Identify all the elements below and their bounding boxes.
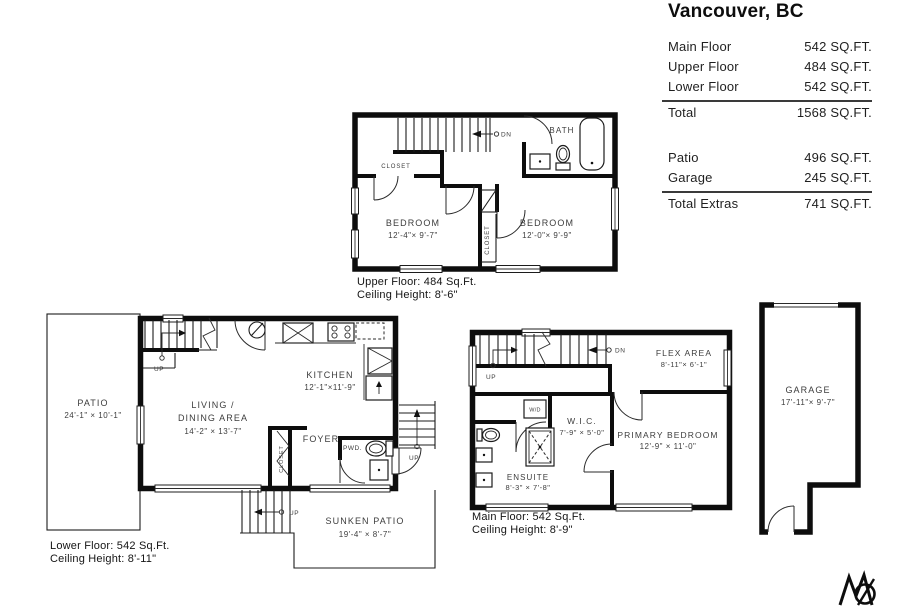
up-label: UP (289, 510, 299, 517)
upper-floor-plan: DN CLOSET CL (350, 110, 620, 275)
caption-line1: Main Floor: 542 Sq.Ft. (472, 511, 585, 524)
sunken-patio-outline: UP SUNKEN PATIO 19'-4" × 8'-7" (240, 490, 435, 568)
bedroom1-name: BEDROOM (386, 218, 440, 228)
living-dims: 14'-2" × 13'-7" (184, 427, 241, 436)
floorplan-sheet: Vancouver, BC Main Floor 542 SQ.FT. Uppe… (0, 0, 910, 606)
row-value: 741 SQ.FT. (804, 196, 872, 216)
wic-dims: 7'-9" × 5'-0" (560, 428, 605, 437)
living-line1: LIVING / (191, 400, 234, 410)
main-floor-caption: Main Floor: 542 Sq.Ft. Ceiling Height: 8… (472, 511, 585, 537)
kitchen-sink-icon (283, 323, 313, 343)
bedroom2-name: BEDROOM (520, 218, 574, 228)
kitchen-name: KITCHEN (306, 370, 353, 380)
row-value: 542 SQ.FT. (804, 39, 872, 59)
lower-floor-caption: Lower Floor: 542 Sq.Ft. Ceiling Height: … (50, 540, 170, 566)
closet-label: CLOSET (381, 164, 410, 170)
up-arrow-icon: UP (409, 409, 420, 462)
patio-name: PATIO (77, 398, 108, 408)
sunken-patio-name: SUNKEN PATIO (326, 516, 405, 526)
sunken-patio-dims: 19'-4" × 8'-7" (339, 530, 391, 539)
powder-room-fixtures: PWD. (343, 441, 393, 480)
caption-line1: Lower Floor: 542 Sq.Ft. (50, 540, 170, 553)
summary-row-garage: Garage 245 SQ.FT. (662, 170, 872, 190)
garage-door-opening (774, 300, 838, 310)
summary-row-lower-floor: Lower Floor 542 SQ.FT. (662, 79, 872, 99)
living-line2: DINING AREA (178, 413, 248, 423)
main-stairs (480, 332, 606, 366)
dn-label: DN (501, 132, 511, 139)
stair-break-line (203, 318, 215, 350)
row-value: 245 SQ.FT. (804, 170, 872, 190)
lower-stairs (143, 318, 217, 368)
bathtub-icon (580, 118, 604, 170)
closet-vertical-label: CLOSET (279, 445, 285, 472)
ensuite-dims: 8'-3" × 7'-8" (506, 483, 551, 492)
garage-plan: GARAGE 17'-11"× 9'-7" (754, 291, 866, 547)
flex-dims: 8'-11"× 6'-1" (661, 360, 707, 369)
summary-divider (662, 100, 872, 102)
foyer-closet: CLOSET (277, 431, 289, 476)
ceiling-light-icon (249, 322, 265, 338)
caption-line2: Ceiling Height: 8'-11" (50, 553, 170, 566)
upper-central-closet: CLOSET (481, 190, 496, 262)
row-label: Total Extras (668, 196, 738, 216)
caption-line2: Ceiling Height: 8'-9" (472, 524, 585, 537)
toilet-icon (556, 146, 570, 171)
row-label: Lower Floor (668, 79, 739, 99)
wic-name: W.I.C. (567, 416, 597, 426)
man-door (768, 506, 794, 537)
garage-walls (762, 305, 858, 532)
main-floor-plan: UP DN W/D (466, 324, 734, 514)
row-label: Main Floor (668, 39, 731, 59)
up-label: UP (154, 366, 164, 373)
toilet-icon (477, 429, 500, 442)
pwd-label: PWD. (343, 445, 362, 452)
summary-row-total: Total 1568 SQ.FT. (662, 105, 872, 125)
up-label: UP (409, 455, 419, 462)
primary-bedroom-name: PRIMARY BEDROOM (617, 430, 718, 440)
foyer-label: FOYER (303, 434, 340, 444)
garage-name: GARAGE (785, 385, 830, 395)
garage-dims: 17'-11"× 9'-7" (781, 398, 835, 407)
up-arrow-icon: UP (254, 509, 299, 517)
summary-row-patio: Patio 496 SQ.FT. (662, 150, 872, 170)
up-label: UP (486, 374, 496, 381)
stair-break-line (538, 332, 550, 366)
company-logo (836, 572, 882, 606)
flex-name: FLEX AREA (656, 348, 712, 358)
oven-icon (366, 376, 392, 400)
washer-dryer-box: W/D (524, 400, 546, 418)
shower-icon (526, 428, 554, 466)
caption-line1: Upper Floor: 484 Sq.Ft. (357, 276, 477, 289)
summary-row-main-floor: Main Floor 542 SQ.FT. (662, 39, 872, 59)
dn-arrow-icon: DN (588, 347, 625, 355)
row-label: Garage (668, 170, 713, 190)
bedroom1-dims: 12'-4"× 9'-7" (388, 231, 438, 240)
kitchen-dims: 12'-1"×11'-9" (304, 383, 355, 392)
row-value: 1568 SQ.FT. (797, 105, 872, 125)
summary-divider (662, 191, 872, 193)
summary-row-upper-floor: Upper Floor 484 SQ.FT. (662, 59, 872, 79)
summary-gap (662, 125, 872, 150)
page-title: Vancouver, BC (668, 1, 872, 23)
primary-bedroom-dims: 12'-9" × 11'-0" (640, 442, 697, 451)
exterior-stairs: UP (399, 401, 435, 462)
lower-walls (140, 319, 396, 489)
caption-line2: Ceiling Height: 8'-6" (357, 289, 477, 302)
closet-vertical-label: CLOSET (485, 225, 491, 254)
ensuite-name: ENSUITE (507, 473, 549, 482)
bath-label: BATH (549, 126, 574, 135)
row-value: 542 SQ.FT. (804, 79, 872, 99)
dn-label: DN (615, 348, 625, 355)
patio-dims: 24'-1" × 10'-1" (64, 411, 121, 420)
toilet-icon (366, 441, 393, 456)
lower-floor-plan: PATIO 24'-1" × 10'-1" (43, 306, 458, 572)
upper-floor-caption: Upper Floor: 484 Sq.Ft. Ceiling Height: … (357, 276, 477, 302)
stove-icon (328, 323, 354, 341)
row-label: Total (668, 105, 696, 125)
patio-outline (47, 314, 140, 530)
row-value: 484 SQ.FT. (804, 59, 872, 79)
row-label: Patio (668, 150, 699, 170)
upper-cabinet-dashed (356, 323, 384, 339)
area-summary: Vancouver, BC Main Floor 542 SQ.FT. Uppe… (662, 1, 872, 216)
row-label: Upper Floor (668, 59, 739, 79)
up-arrow-icon: UP (486, 347, 518, 381)
fridge-icon (368, 348, 392, 374)
bedroom2-dims: 12'-0"× 9'-9" (522, 231, 572, 240)
row-value: 496 SQ.FT. (804, 150, 872, 170)
summary-row-total-extras: Total Extras 741 SQ.FT. (662, 196, 872, 216)
wd-label: W/D (529, 408, 541, 414)
